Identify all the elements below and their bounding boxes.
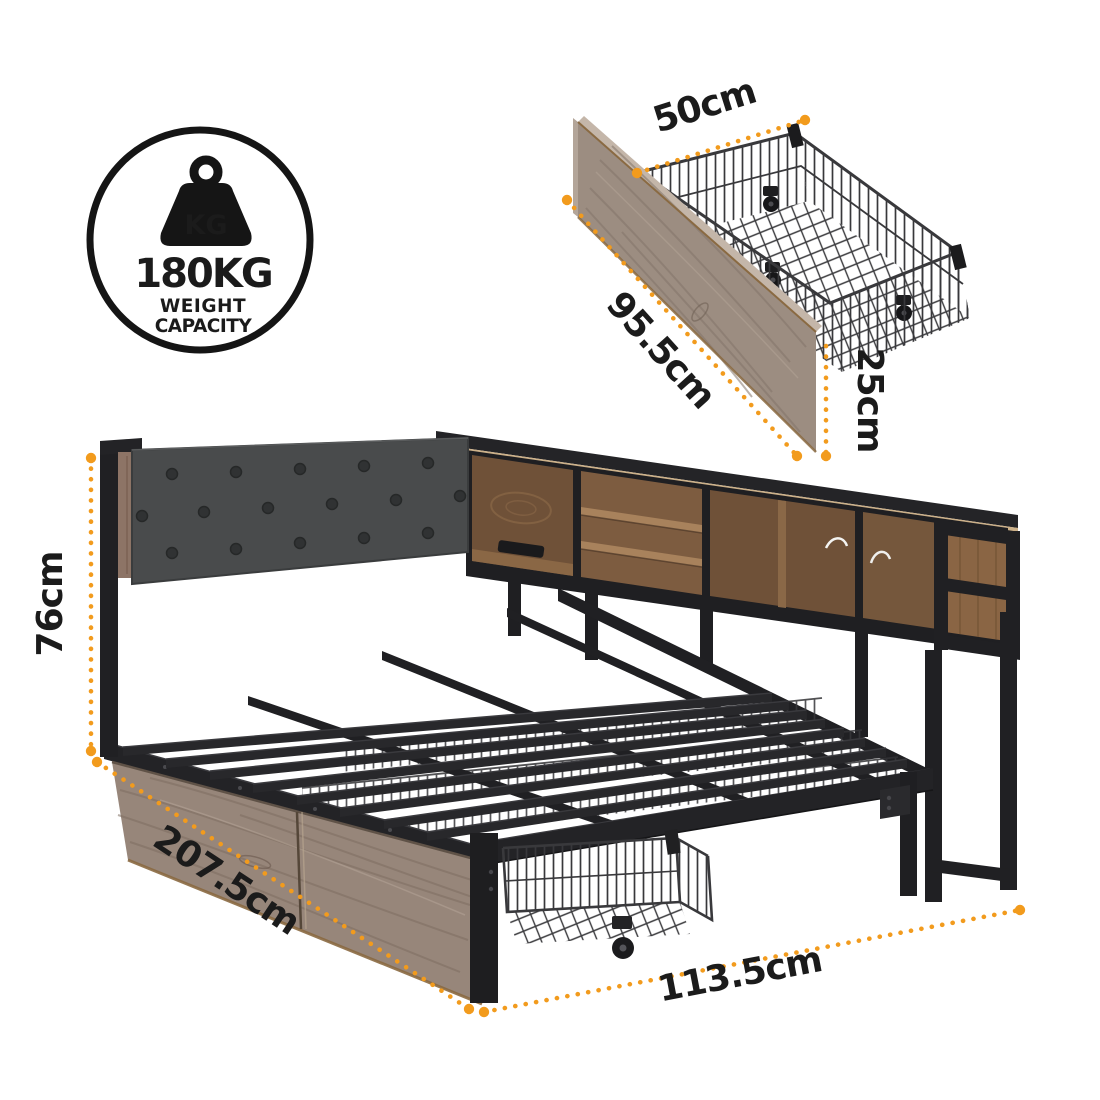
badge-caption-line1: WEIGHT <box>160 296 246 317</box>
corner-post <box>470 833 498 1003</box>
bed-height-label: 76cm <box>30 552 71 657</box>
drawer-height-label: 25cm <box>849 348 890 453</box>
badge-caption-line2: CAPACITY <box>155 316 253 337</box>
shelf-compartment-divided <box>710 490 855 617</box>
shelf-compartment-open <box>472 455 573 576</box>
badge-value: 180KG <box>134 251 271 297</box>
infographic-canvas: KG 180KG WEIGHT CAPACITY 50cm 95.5cm 25c… <box>0 0 1100 1100</box>
product-dimension-infographic: KG 180KG WEIGHT CAPACITY 50cm 95.5cm 25c… <box>0 0 1100 1100</box>
weight-capacity-badge: KG 180KG WEIGHT CAPACITY <box>90 130 310 350</box>
shelf-compartment-shelved <box>581 471 702 595</box>
badge-icon-label: KG <box>184 210 227 241</box>
headboard-post <box>100 447 118 757</box>
